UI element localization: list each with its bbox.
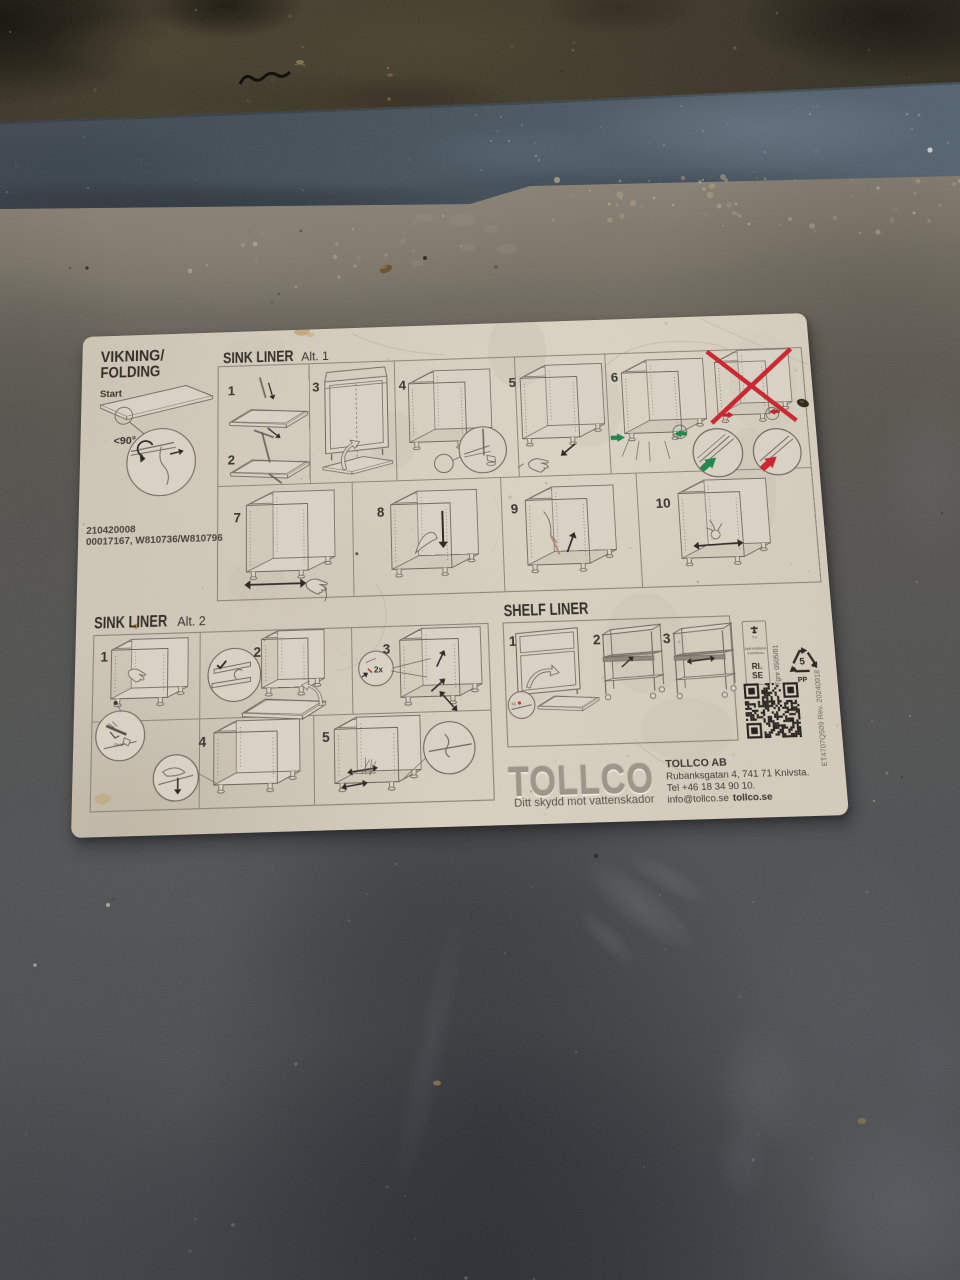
svg-text:PP: PP (798, 676, 809, 684)
svg-text:SINK LINER: SINK LINER (94, 612, 167, 633)
svg-text:4: 4 (399, 378, 407, 393)
svg-text:SHELF LINER: SHELF LINER (503, 600, 589, 621)
svg-text:2x: 2x (374, 664, 384, 674)
svg-text:3: 3 (662, 631, 671, 647)
svg-text:KONTROLL: KONTROLL (747, 651, 765, 656)
svg-text:SE: SE (752, 670, 764, 680)
svg-text:10: 10 (655, 496, 671, 511)
svg-text:5: 5 (322, 729, 330, 745)
svg-text:Start: Start (100, 388, 122, 399)
svg-text:7: 7 (233, 510, 241, 525)
svg-text:info@tollco.se: info@tollco.se (667, 792, 729, 805)
svg-text:3: 3 (312, 380, 320, 395)
svg-text:1: 1 (228, 384, 235, 399)
svg-text:2: 2 (593, 632, 602, 648)
svg-text:Alt. 1: Alt. 1 (301, 351, 329, 364)
svg-text:5: 5 (508, 376, 516, 391)
svg-text:2: 2 (228, 453, 235, 468)
svg-text:210420008: 210420008 (86, 524, 136, 536)
svg-text:tollco.se: tollco.se (732, 790, 773, 803)
svg-text:Seal: Seal (114, 742, 123, 748)
svg-text:1: 1 (100, 649, 108, 665)
svg-text:<90°: <90° (113, 435, 136, 447)
svg-text:Alt. 2: Alt. 2 (177, 615, 206, 629)
svg-text:T·U: T·U (752, 635, 757, 640)
svg-text:8: 8 (377, 505, 385, 520)
svg-text:5: 5 (799, 656, 805, 667)
svg-text:9: 9 (510, 502, 518, 517)
svg-text:FOLDING: FOLDING (100, 363, 160, 382)
svg-text:6: 6 (610, 370, 618, 385)
svg-text:4: 4 (199, 734, 207, 750)
